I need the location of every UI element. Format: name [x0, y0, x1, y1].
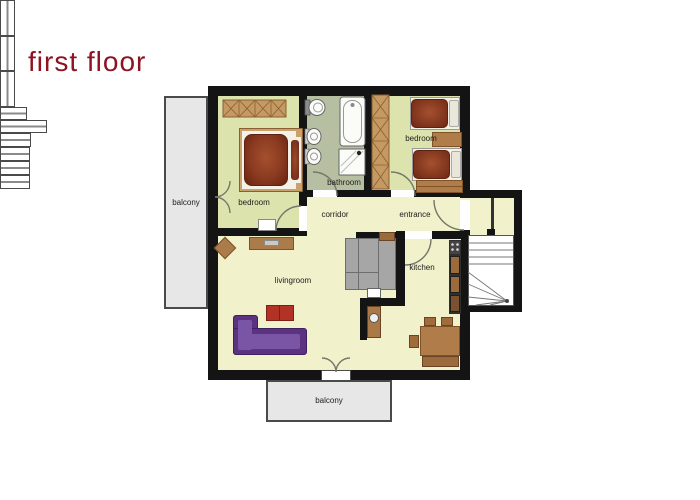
coffee-table-icon [266, 305, 294, 321]
window [0, 133, 31, 147]
duvet-icon [411, 99, 448, 128]
cabinet-line [345, 272, 378, 273]
nightstand-icon [258, 219, 276, 231]
cabinet-line [378, 238, 379, 290]
balcony-bottom: balcony [266, 380, 392, 422]
wall [337, 190, 364, 197]
chair-icon [441, 317, 453, 326]
room-label-bedroom-left: bedroom [226, 198, 282, 208]
pillow-icon [291, 140, 299, 180]
room-label-entrance: entrance [391, 210, 439, 220]
wall [461, 230, 470, 312]
page-title: first floor [28, 46, 146, 78]
pillow-icon [451, 151, 461, 178]
wall [514, 190, 522, 312]
door-opening [299, 206, 307, 231]
kitchen-cabinet-icon [379, 232, 395, 241]
door-opening [313, 190, 337, 197]
window [0, 161, 30, 175]
coffee-table-line [279, 306, 280, 320]
cabinet-line [358, 238, 359, 290]
room-label-livingroom: livingroom [264, 276, 322, 286]
sofa-seat [240, 334, 300, 349]
wall [208, 86, 470, 96]
room-label-bedroom-right: bedroom [396, 134, 446, 144]
cabinet-icon [345, 238, 396, 290]
wall [432, 231, 462, 239]
stove-icon [450, 241, 460, 254]
kitchen-cabinet-icon [450, 295, 460, 312]
balcony-left: balcony [164, 96, 208, 309]
window [0, 71, 15, 107]
chair-icon [409, 335, 419, 348]
window [0, 107, 27, 120]
window [0, 175, 30, 189]
kitchen-cabinet-icon [450, 276, 460, 293]
duvet-icon [413, 150, 450, 179]
wall [360, 298, 367, 340]
window [0, 147, 30, 161]
dining-table-icon [420, 326, 460, 356]
window [0, 120, 47, 133]
room-label-corridor: corridor [311, 210, 359, 220]
chair-icon [424, 317, 436, 326]
duvet-icon [244, 134, 288, 186]
wall [460, 190, 522, 198]
room-label-kitchen: kitchen [400, 263, 444, 273]
wall [364, 190, 391, 197]
french-door-balcony [0, 36, 15, 71]
wall [460, 304, 470, 380]
sink-counter-icon [450, 256, 460, 274]
sideboard-detail [264, 240, 279, 246]
floor-plan-page: first floor balcony balcony [0, 0, 700, 500]
door-opening [405, 231, 432, 239]
door-opening [460, 200, 470, 230]
wall [487, 229, 495, 236]
room-label-bathroom: bathroom [318, 178, 370, 188]
door-opening [391, 190, 414, 197]
balcony-left-label: balcony [172, 198, 200, 208]
appliance-icon [367, 288, 381, 298]
dresser-line [417, 186, 462, 187]
washbasin-cabinet-icon [367, 306, 381, 338]
window [0, 0, 15, 36]
wall [208, 228, 303, 236]
bench-icon [422, 356, 459, 367]
balcony-bottom-label: balcony [315, 396, 343, 406]
pillow-icon [449, 100, 459, 127]
french-door-terrace [321, 370, 351, 381]
